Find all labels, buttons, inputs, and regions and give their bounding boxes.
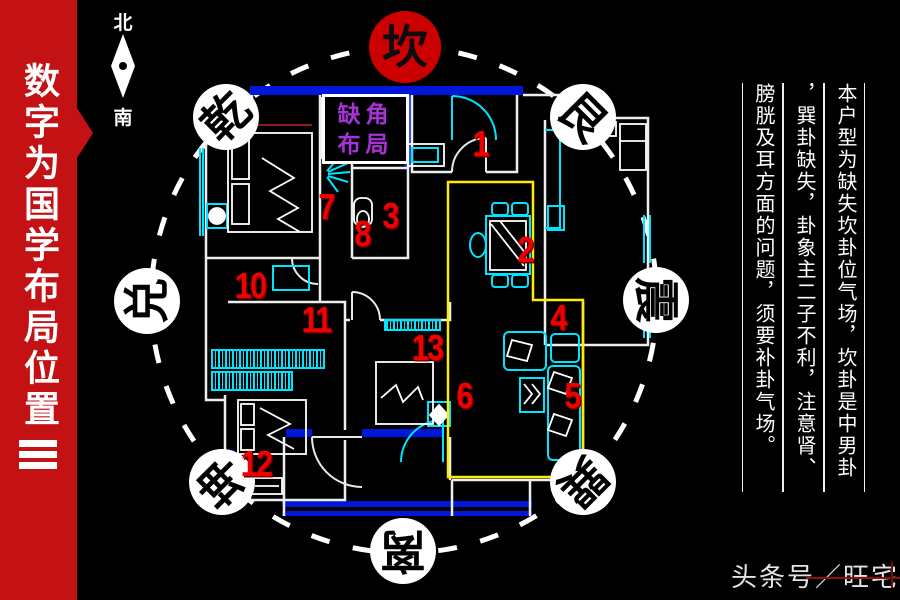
- position-number-12: 12: [241, 443, 272, 485]
- watermark-strike-line: [806, 577, 900, 579]
- bagua-label-xun: 巽: [550, 449, 615, 514]
- position-number-1: 1: [472, 123, 487, 165]
- watermark-text: 头条号／旺宅旺: [731, 557, 900, 594]
- bagua-circle-gen: 艮: [550, 84, 616, 150]
- bagua-circle-kan: 坎: [369, 11, 441, 83]
- analysis-column-2: ，巽卦缺失，卦象主二子不利，注意肾、: [783, 83, 824, 492]
- position-number-8: 8: [354, 213, 369, 255]
- position-number-3: 3: [382, 195, 397, 237]
- analysis-column-1: 本户型为缺失坎卦位气场，坎卦是中男卦: [824, 83, 865, 492]
- bagua-label-qian: 乾: [193, 84, 258, 149]
- bagua-label-dui: 兑: [124, 278, 170, 324]
- bagua-circle-qian: 乾: [193, 84, 259, 150]
- position-number-5: 5: [564, 375, 579, 417]
- bagua-label-zhen: 震: [633, 277, 679, 323]
- missing-corner-label: 缺角 布局: [322, 94, 409, 164]
- fengshui-floorplan-infographic: 数字为国学布局位置 北 南 坎 乾 艮 兑 震 坤 巽 离 缺角 布局 1 2 …: [0, 0, 900, 600]
- position-number-13: 13: [412, 327, 443, 369]
- bagua-circle-zhen: 震: [623, 267, 689, 333]
- bagua-label-gen: 艮: [550, 84, 615, 149]
- bagua-label-li: 离: [380, 528, 426, 574]
- analysis-text-panel: 本户型为缺失坎卦位气场，坎卦是中男卦 ，巽卦缺失，卦象主二子不利，注意肾、 膀胱…: [742, 83, 865, 492]
- compass-needle-icon: [110, 34, 136, 98]
- bagua-circle-li: 离: [370, 518, 436, 584]
- position-number-10: 10: [235, 265, 266, 307]
- position-number-6: 6: [456, 375, 471, 417]
- position-number-11: 11: [302, 299, 331, 341]
- position-number-7: 7: [318, 186, 333, 228]
- bagua-label-kan: 坎: [382, 24, 428, 70]
- bagua-circle-dui: 兑: [114, 268, 180, 334]
- bagua-circle-xun: 巽: [550, 449, 616, 515]
- position-number-4: 4: [550, 297, 565, 339]
- analysis-column-3: 膀胱及耳方面的问题，须要补卦气场。: [742, 83, 783, 492]
- watermark-tick: [891, 562, 893, 588]
- position-number-2: 2: [517, 229, 532, 271]
- missing-corner-label-line1: 缺角: [325, 99, 406, 129]
- missing-corner-label-line2: 布局: [325, 129, 406, 159]
